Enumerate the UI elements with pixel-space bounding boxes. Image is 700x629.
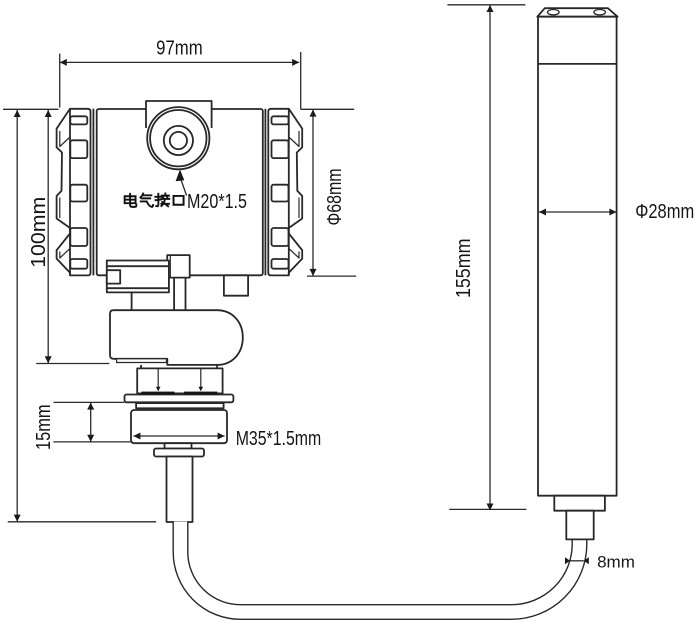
svg-text:8mm: 8mm <box>597 553 635 571</box>
svg-text:155mm: 155mm <box>453 239 475 299</box>
svg-text:100mm: 100mm <box>28 197 50 268</box>
svg-text:M35*1.5mm: M35*1.5mm <box>236 428 322 450</box>
svg-text:M20*1.5: M20*1.5 <box>187 191 247 213</box>
svg-text:Φ68mm: Φ68mm <box>324 169 346 226</box>
svg-text:97mm: 97mm <box>156 38 203 60</box>
svg-text:15mm: 15mm <box>33 404 55 450</box>
svg-text:Φ28mm: Φ28mm <box>635 201 694 223</box>
